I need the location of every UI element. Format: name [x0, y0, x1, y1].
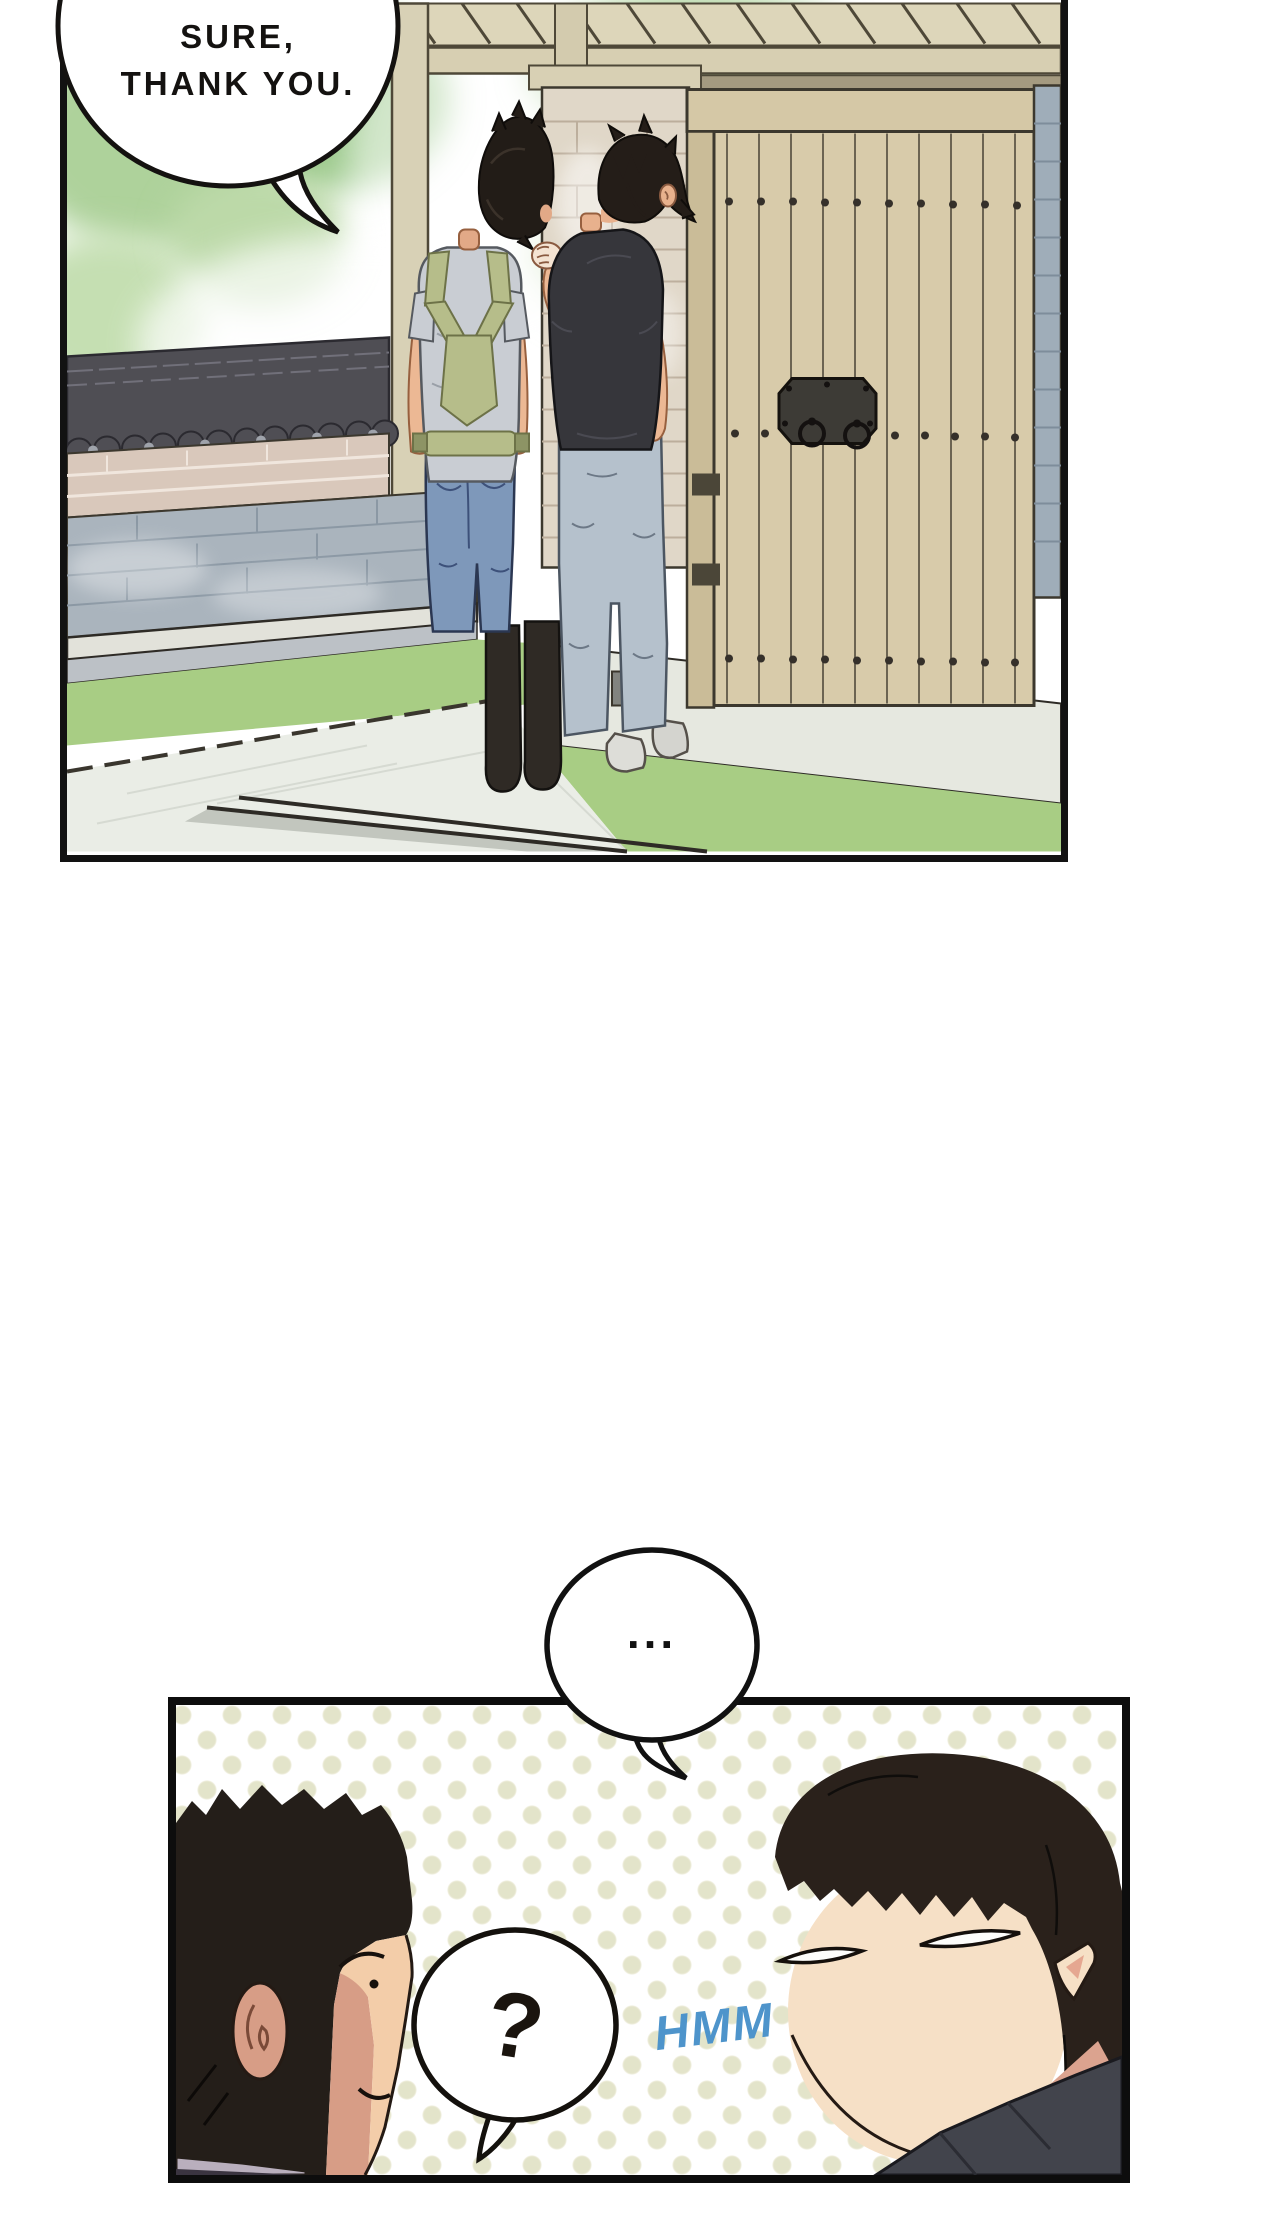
question-bubble: ? [414, 1930, 616, 2159]
pillar-cap-beam [529, 66, 701, 90]
ellipsis-text: ... [627, 1606, 677, 1658]
short-man-right-boot [525, 622, 561, 790]
speech-line-2: THANK YOU. [121, 65, 356, 102]
speech-bubble-thanks: SURE, THANK YOU. [40, 0, 430, 250]
speech-bubble-thanks-art: SURE, THANK YOU. [40, 0, 430, 250]
ellipsis-bubble: ... [530, 1530, 790, 1790]
chibi-right-character [775, 1753, 1122, 2175]
short-man-neck [459, 230, 479, 250]
tall-man-shirt [549, 230, 663, 450]
chibi-left-eye [370, 1980, 379, 1989]
ellipsis-bubble-art: ... [530, 1530, 790, 1790]
door-knocker [779, 379, 876, 448]
speech-line-1: SURE, [180, 18, 296, 55]
gate-hinge-1 [692, 474, 720, 496]
tiled-wall [67, 338, 398, 518]
tall-man-neck [581, 214, 601, 232]
chibi-left-character [176, 1785, 412, 2175]
comic-page: ? HMM SURE, THANK YOU. ... [0, 0, 1280, 2222]
gate-top-rail [687, 90, 1061, 132]
tall-man-left-shoe [607, 734, 646, 772]
short-man-left-boot [486, 626, 521, 792]
gate-hinge-2 [692, 564, 720, 586]
sfx-hmm: HMM [651, 1994, 777, 2061]
short-man-ear [540, 205, 552, 223]
